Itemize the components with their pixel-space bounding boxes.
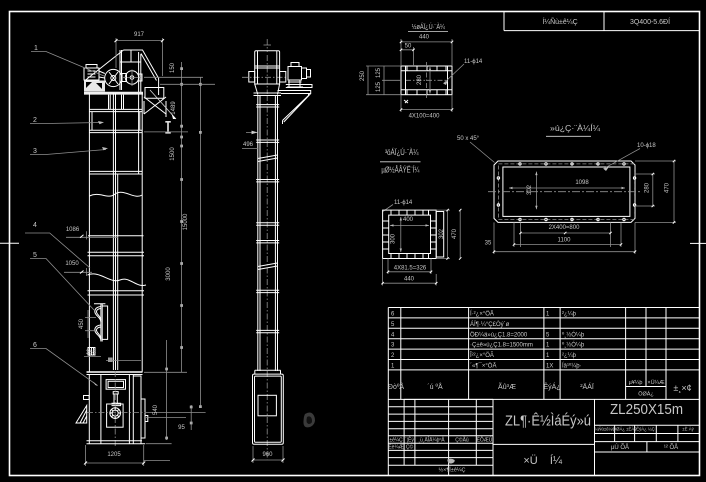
svg-text:3Q400-5.6ÐÍ: 3Q400-5.6ÐÍ xyxy=(630,17,670,26)
svg-text:²ÄÁÏ: ²ÄÁÏ xyxy=(580,382,594,391)
svg-text:440: 440 xyxy=(419,35,430,41)
svg-text:×Ü: ×Ü xyxy=(523,455,537,467)
svg-text:³öÁÏ¿Ú·¨À¼: ³öÁÏ¿Ú·¨À¼ xyxy=(385,148,419,157)
svg-text:4X100=400: 4X100=400 xyxy=(409,114,441,120)
svg-text:ÖØÁ¿ ±ÈÀý: ÖØÁ¿ ±ÈÀý xyxy=(613,427,637,432)
svg-text:²¿¼þ: ²¿¼þ xyxy=(562,353,577,359)
svg-text:Í¼Ñù±ê¼Ç: Í¼Ñù±ê¼Ç xyxy=(542,17,577,26)
svg-text:´«¶¯×°ÖÃ: ´«¶¯×°ÖÃ xyxy=(470,363,496,370)
svg-text:±¸×¢: ±¸×¢ xyxy=(673,383,691,393)
svg-text:400: 400 xyxy=(403,217,414,223)
svg-text:ÖØÁ¿: ÖØÁ¿ xyxy=(638,391,654,398)
svg-text:Ãû³Æ: Ãû³Æ xyxy=(498,382,516,391)
svg-text:Ç©Ãû: Ç©Ãû xyxy=(455,437,469,444)
svg-text:540: 540 xyxy=(153,404,159,415)
svg-text:Éè¼Æ: Éè¼Æ xyxy=(388,444,403,451)
svg-text:½×¶Î±ê¼Ç: ½×¶Î±ê¼Ç xyxy=(439,467,466,474)
svg-text:150: 150 xyxy=(170,62,176,73)
svg-text:2X400=800: 2X400=800 xyxy=(549,225,581,231)
svg-text:11-ϕ14: 11-ϕ14 xyxy=(394,200,413,206)
svg-text:1500: 1500 xyxy=(170,147,176,161)
svg-text:²¿¼þ: ²¿¼þ xyxy=(562,312,577,318)
svg-text:1: 1 xyxy=(34,45,38,52)
svg-text:10-ϕ18: 10-ϕ18 xyxy=(637,143,656,149)
svg-text:440: 440 xyxy=(404,277,415,283)
svg-text:2: 2 xyxy=(33,117,37,124)
svg-text:ÊýÁ¿: ÊýÁ¿ xyxy=(543,382,560,391)
svg-text:1489: 1489 xyxy=(171,101,177,115)
svg-text:±ê¼Ç: ±ê¼Ç xyxy=(389,438,403,444)
svg-text:º¸½Ó¼þ: º¸½Ó¼þ xyxy=(562,331,585,338)
svg-text:µÚ ÕÅ: µÚ ÕÅ xyxy=(611,444,629,451)
svg-text:6: 6 xyxy=(33,342,37,349)
svg-text:50: 50 xyxy=(405,44,412,50)
svg-text:450: 450 xyxy=(79,318,85,329)
svg-text:ÐòºÅ: ÐòºÅ xyxy=(388,382,405,391)
svg-text:470: 470 xyxy=(452,228,458,239)
svg-text:470: 470 xyxy=(665,182,671,193)
svg-text:280: 280 xyxy=(645,182,651,193)
svg-text:µ¥¼þ: µ¥¼þ xyxy=(629,380,643,386)
svg-text:ÊýÁ¿ ¼Ç: ÊýÁ¿ ¼Ç xyxy=(636,427,654,432)
svg-text:·Ç±ê»ú¿Ç1.8=1500mm: ·Ç±ê»ú¿Ç1.8=1500mm xyxy=(470,343,533,349)
svg-text:1086: 1086 xyxy=(66,227,80,233)
svg-text:15000: 15000 xyxy=(183,213,189,230)
svg-text:302: 302 xyxy=(439,228,445,239)
svg-text:1100: 1100 xyxy=(558,238,572,244)
svg-text:4: 4 xyxy=(33,222,37,229)
svg-text:Ç©: Ç© xyxy=(406,444,414,451)
svg-text:125: 125 xyxy=(376,67,382,78)
svg-text:º¸½Ó¼þ: º¸½Ó¼þ xyxy=(562,342,585,349)
svg-text:302: 302 xyxy=(527,184,533,195)
svg-text:¸ü¸ÄÎÄ¼þºÅ: ¸ü¸ÄÎÄ¼þºÅ xyxy=(418,437,445,444)
svg-text:¹² ÕÅ: ¹² ÕÅ xyxy=(664,444,678,451)
svg-text:11-ϕ14: 11-ϕ14 xyxy=(464,59,483,65)
svg-text:ÁÏ¶·¼°Ç£Òý´ø: ÁÏ¶·¼°Ç£Òý´ø xyxy=(470,321,510,328)
svg-text:917: 917 xyxy=(134,32,145,38)
svg-text:Í·²¿×°ÖÃ: Í·²¿×°ÖÃ xyxy=(470,311,494,318)
svg-text:Î²²¿×°ÖÃ: Î²²¿×°ÖÃ xyxy=(469,352,494,359)
svg-text:ZL¶·Ê½ÌáÉý»ú: ZL¶·Ê½ÌáÉý»ú xyxy=(505,413,591,430)
svg-text:496: 496 xyxy=(243,142,254,148)
svg-text:3: 3 xyxy=(33,148,37,155)
svg-text:ZL250X15m: ZL250X15m xyxy=(610,402,683,418)
svg-text:Íâ¹º¼þ·: Íâ¹º¼þ· xyxy=(562,363,582,370)
svg-text:ÈÕÆÚ: ÈÕÆÚ xyxy=(477,437,493,444)
svg-text:´¦Êý: ´¦Êý xyxy=(405,436,414,444)
svg-text:1050: 1050 xyxy=(65,261,79,267)
svg-text:×Ü¼Æ: ×Ü¼Æ xyxy=(647,379,665,386)
svg-text:250: 250 xyxy=(360,70,366,81)
svg-text:±È Àý: ±È Àý xyxy=(682,427,694,432)
svg-text:4X81.5=326: 4X81.5=326 xyxy=(394,266,427,272)
svg-text:1098: 1098 xyxy=(575,180,589,186)
svg-text:50 x 45°: 50 x 45° xyxy=(457,136,480,142)
svg-text:95: 95 xyxy=(178,425,185,431)
svg-text:125: 125 xyxy=(376,81,382,92)
svg-text:1205: 1205 xyxy=(107,452,121,458)
svg-text:35: 35 xyxy=(485,241,492,247)
svg-text:5: 5 xyxy=(33,252,37,259)
svg-text:Í¼: Í¼ xyxy=(550,454,563,467)
svg-text:ÖÐ¼ä»ú¿Ç1.8=2000: ÖÐ¼ä»ú¿Ç1.8=2000 xyxy=(470,331,528,338)
svg-text:»ú¿Ç·¨À¼Í¼: »ú¿Ç·¨À¼Í¼ xyxy=(550,124,600,133)
svg-text:3000: 3000 xyxy=(166,267,172,281)
svg-text:960: 960 xyxy=(262,452,273,458)
svg-text:365: 365 xyxy=(86,350,97,356)
svg-text:½øÁÏ¿Ú·¨À¼: ½øÁÏ¿Ú·¨À¼ xyxy=(412,22,445,31)
svg-text:1X: 1X xyxy=(546,364,553,370)
svg-text:´ú ºÅ: ´ú ºÅ xyxy=(427,382,443,391)
svg-text:300: 300 xyxy=(391,233,397,244)
svg-text:µØ½ÅÂÝË¨Í¼: µØ½ÅÂÝË¨Í¼ xyxy=(381,166,419,175)
svg-text:280: 280 xyxy=(417,74,423,85)
